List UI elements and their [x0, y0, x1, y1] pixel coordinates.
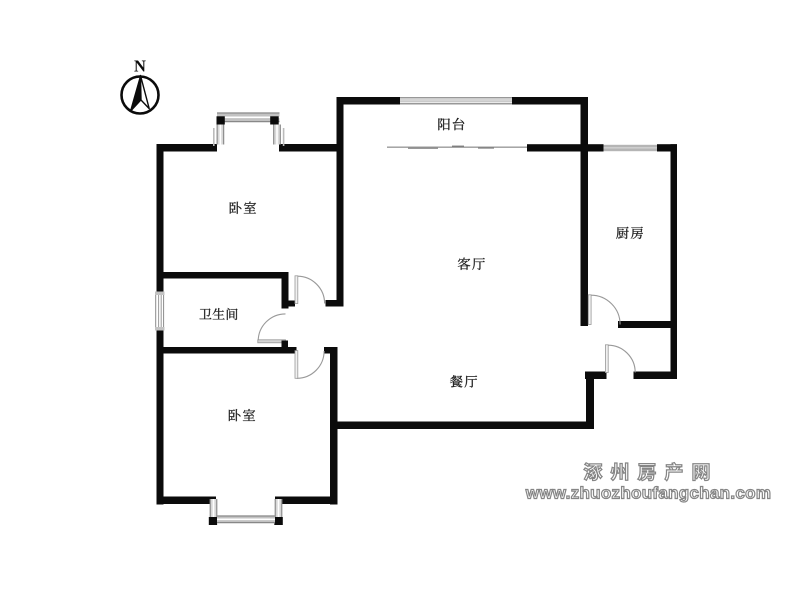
svg-text:www.zhuozhoufangchan.com: www.zhuozhoufangchan.com: [525, 484, 772, 503]
svg-text:N: N: [134, 57, 146, 76]
